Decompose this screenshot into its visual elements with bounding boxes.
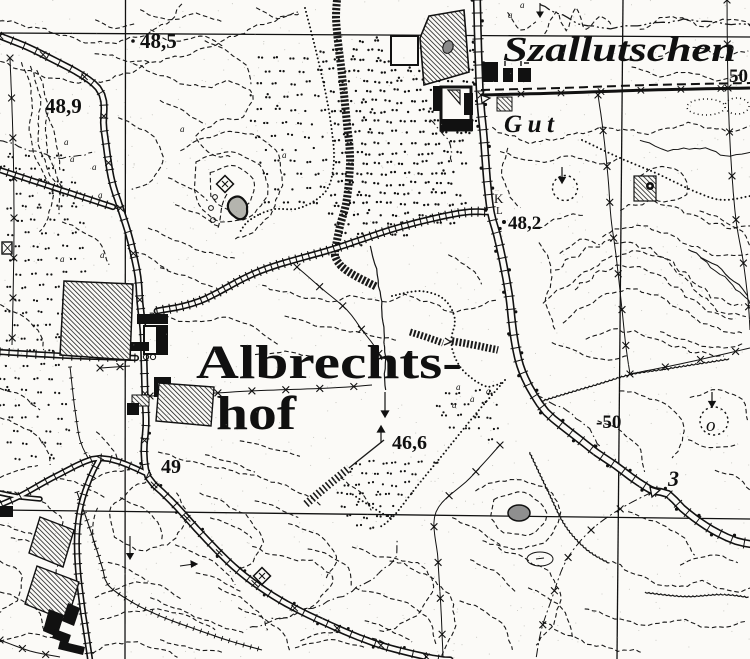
svg-text:a: a [100,250,105,260]
svg-text:Szallutschen: Szallutschen [503,30,736,69]
svg-text:a: a [64,137,69,147]
svg-text:-50: -50 [596,412,621,433]
svg-text:46,6: 46,6 [392,432,427,454]
svg-text:49: 49 [161,456,181,478]
svg-text:a: a [508,10,513,20]
svg-text:48,9: 48,9 [45,94,82,118]
svg-text:a: a [92,162,97,172]
svg-text:50: 50 [729,66,748,87]
svg-text:a: a [486,386,491,396]
svg-text:a: a [60,254,65,264]
svg-text:L: L [496,205,503,217]
svg-text:3: 3 [667,466,679,491]
svg-text:K: K [494,191,504,206]
svg-text:a: a [520,0,525,10]
svg-text:a: a [180,124,185,134]
svg-text:a: a [282,150,287,160]
svg-text:Gut: Gut [504,111,555,138]
svg-text:Albrechts-: Albrechts- [196,336,462,389]
svg-text:o: o [706,415,716,436]
svg-text:a: a [470,394,475,404]
svg-text:48,2: 48,2 [508,213,541,234]
svg-text:48,5: 48,5 [140,29,177,53]
svg-text:hof: hof [216,387,297,440]
